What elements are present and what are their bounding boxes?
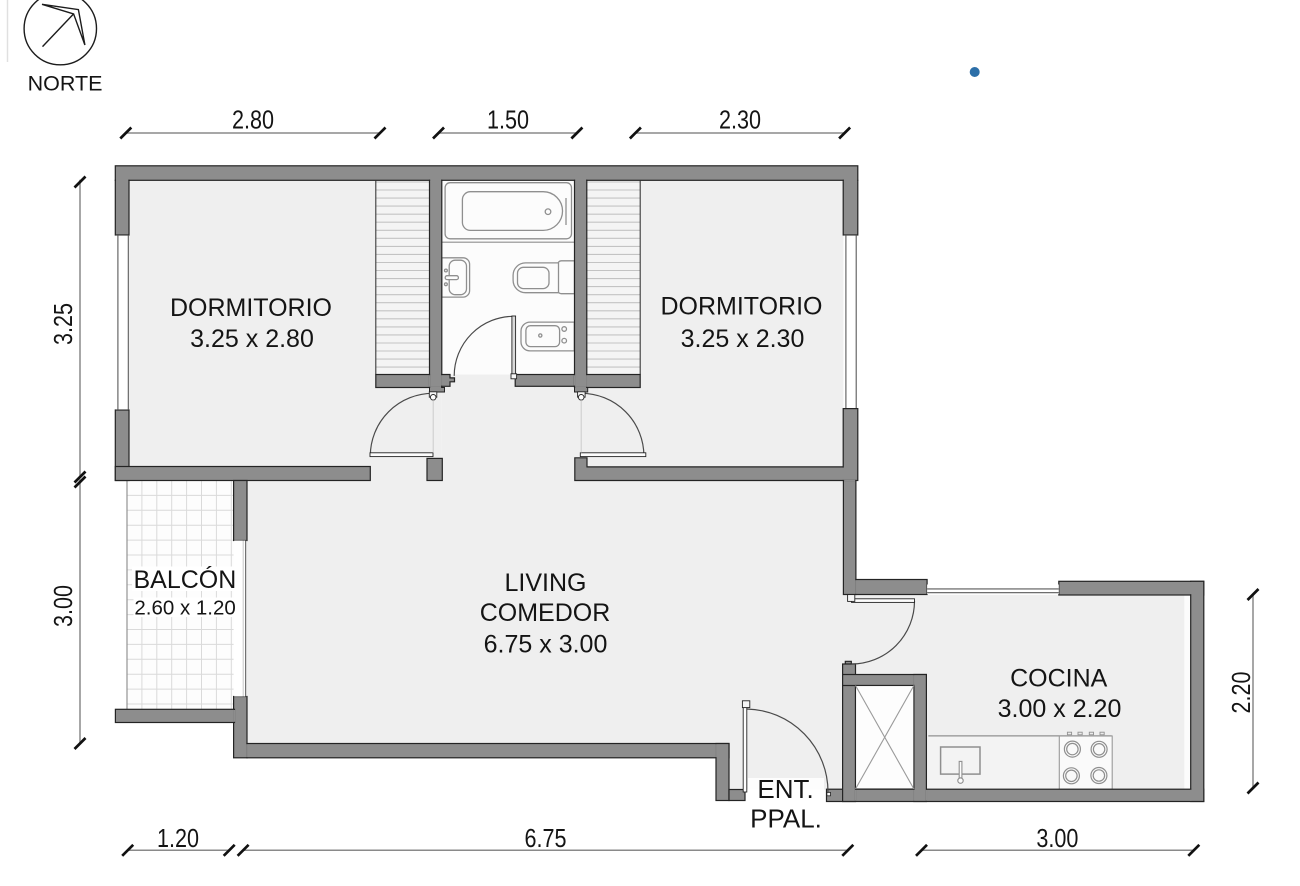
svg-text:LIVING: LIVING: [505, 569, 587, 597]
svg-text:ENT.: ENT.: [757, 774, 813, 804]
svg-text:2.30: 2.30: [719, 105, 761, 135]
svg-text:NORTE: NORTE: [28, 72, 103, 96]
svg-text:COCINA: COCINA: [1010, 665, 1108, 693]
svg-text:COMEDOR: COMEDOR: [480, 599, 611, 627]
svg-text:1.50: 1.50: [487, 105, 529, 135]
svg-text:3.00 x 2.20: 3.00 x 2.20: [998, 695, 1122, 723]
svg-text:6.75: 6.75: [525, 823, 567, 853]
svg-text:3.00: 3.00: [48, 585, 78, 627]
svg-text:DORMITORIO: DORMITORIO: [660, 293, 822, 321]
svg-text:2.60 x 1.20: 2.60 x 1.20: [134, 597, 235, 620]
svg-text:3.25: 3.25: [48, 303, 78, 345]
svg-text:2.20: 2.20: [1226, 672, 1256, 714]
svg-text:3.00: 3.00: [1036, 823, 1078, 853]
svg-text:3.25 x 2.30: 3.25 x 2.30: [681, 325, 805, 353]
svg-text:PPAL.: PPAL.: [750, 804, 822, 834]
svg-text:6.75 x 3.00: 6.75 x 3.00: [484, 631, 608, 659]
svg-text:1.20: 1.20: [157, 823, 199, 853]
svg-text:3.25 x 2.80: 3.25 x 2.80: [190, 325, 314, 353]
svg-text:2.80: 2.80: [232, 105, 274, 135]
svg-text:BALCÓN: BALCÓN: [133, 565, 236, 594]
svg-text:DORMITORIO: DORMITORIO: [170, 294, 332, 322]
